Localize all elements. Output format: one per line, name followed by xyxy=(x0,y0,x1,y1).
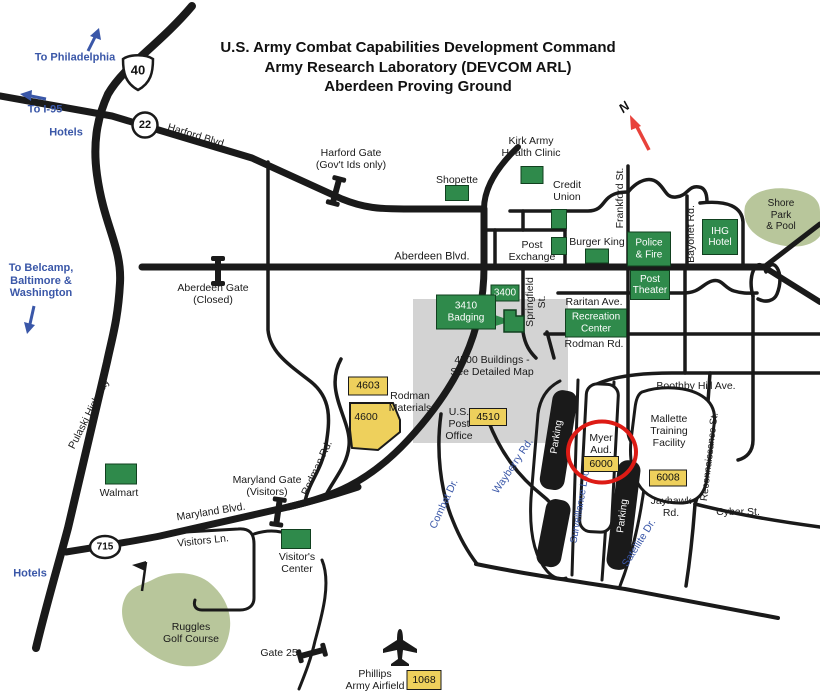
north-arrow-icon xyxy=(636,125,649,150)
road-grid-v2 xyxy=(738,296,753,460)
route-715-shield-label: 715 xyxy=(97,542,114,553)
gate-25-label: Gate 25 xyxy=(260,647,297,659)
shopette-label: Shopette xyxy=(436,174,478,186)
maryland-gate-label: Maryland Gate (Visitors) xyxy=(233,474,302,498)
aberdeen-gate-label: Aberdeen Gate (Closed) xyxy=(177,282,248,306)
belcamp-arrowhead xyxy=(24,322,35,334)
rodman-materials-label: Rodman Materials xyxy=(389,390,432,414)
harford-gate-label: Harford Gate (Gov't Ids only) xyxy=(316,147,386,171)
rodman-rd-east-label: Rodman Rd. xyxy=(565,338,624,350)
springfield-st-label: Springfield St. xyxy=(524,277,548,327)
shore-park-label: Shore Park & Pool xyxy=(762,198,801,233)
detailed-map-note: 4500 Buildings - See Detailed Map xyxy=(450,354,533,378)
road-route22-harford-blvd xyxy=(0,96,484,209)
credit-union-label: Credit Union xyxy=(553,179,581,203)
ihg-hotel-box: IHG Hotel xyxy=(702,219,738,255)
road-aberdeen-blvd-east xyxy=(764,267,820,302)
kirk-clinic-marker xyxy=(521,166,544,184)
burger-king-label: Burger King xyxy=(569,236,624,248)
title-line-1: U.S. Army Combat Capabilities Developmen… xyxy=(188,38,648,58)
burger-king-marker xyxy=(585,249,609,264)
credit-union-marker xyxy=(551,209,567,229)
aberdeen-blvd-label: Aberdeen Blvd. xyxy=(394,251,469,264)
walmart-marker xyxy=(105,464,137,485)
belcamp-arrow-icon xyxy=(30,306,34,324)
cyber-st-label: Cyber St. xyxy=(716,506,760,518)
road-network xyxy=(0,6,820,689)
mallette-facility-label: Mallette Training Facility xyxy=(650,413,688,449)
visitor-center-label: Visitor's Center xyxy=(279,551,315,575)
frankford-st-label: Frankford St. xyxy=(614,168,626,229)
post-theater-box: Post Theater xyxy=(630,270,670,300)
philadelphia-arrow-icon xyxy=(88,37,95,51)
building-1068-box: 1068 xyxy=(407,670,442,690)
boothby-hill-ave-label: Boothby Hill Ave. xyxy=(656,380,735,392)
myer-aud-highlight-circle xyxy=(566,420,638,485)
to-philadelphia-label: To Philadelphia xyxy=(35,52,115,65)
to-i95-label: To I-95 xyxy=(28,104,63,117)
golf-flag-icon xyxy=(132,561,146,571)
road-south-diagonal xyxy=(476,564,778,618)
hotels-north-label: Hotels xyxy=(49,127,83,140)
map-canvas xyxy=(0,0,820,697)
us-post-office-label: U.S. Post Office xyxy=(445,406,472,442)
to-belcamp-label: To Belcamp, Baltimore & Washington xyxy=(9,262,74,300)
title-line-3: Aberdeen Proving Ground xyxy=(188,77,648,97)
raritan-ave-label: Raritan Ave. xyxy=(565,296,622,308)
jayhawk-rd-label: Jayhawk Rd. xyxy=(651,495,692,519)
shopette-marker xyxy=(445,185,469,201)
route-40-shield-label: 40 xyxy=(131,63,145,78)
police-fire-box: Police & Fire xyxy=(627,232,671,267)
bayonet-rd-label: Bayonet Rd. xyxy=(685,205,697,263)
recreation-center-box: Recreation Center xyxy=(565,309,627,338)
map-title: U.S. Army Combat Capabilities Developmen… xyxy=(188,38,648,97)
building-4603-box: 4603 xyxy=(348,377,388,396)
road-teardrop-loop xyxy=(751,265,780,301)
ruggles-golf-label: Ruggles Golf Course xyxy=(163,621,219,645)
visitor-center-marker xyxy=(281,529,311,549)
building-4510-box: 4510 xyxy=(469,408,507,426)
building-4600-label: 4600 xyxy=(354,411,377,423)
hotels-south-label: Hotels xyxy=(13,568,47,581)
walmart-label: Walmart xyxy=(100,487,139,499)
parking-lot-west-2 xyxy=(535,497,573,569)
road-visitor-center-access xyxy=(254,531,281,534)
road-gate25 xyxy=(299,560,326,689)
badging-callout-box: 3410 Badging xyxy=(436,295,496,330)
title-line-2: Army Research Laboratory (DEVCOM ARL) xyxy=(188,58,648,78)
road-north-wavy xyxy=(628,180,707,202)
gate25-icon xyxy=(296,642,329,663)
kirk-clinic-label: Kirk Army Health Clinic xyxy=(502,135,561,159)
route-22-shield-label: 22 xyxy=(139,119,151,131)
airfield-plane-icon xyxy=(383,629,417,666)
installation-map: U.S. Army Combat Capabilities Developmen… xyxy=(0,0,820,697)
phillips-airfield-label: Phillips Army Airfield xyxy=(346,668,405,692)
building-6008-box: 6008 xyxy=(649,470,687,487)
post-exchange-label: Post Exchange xyxy=(509,239,556,263)
golf-course-area xyxy=(122,573,230,666)
